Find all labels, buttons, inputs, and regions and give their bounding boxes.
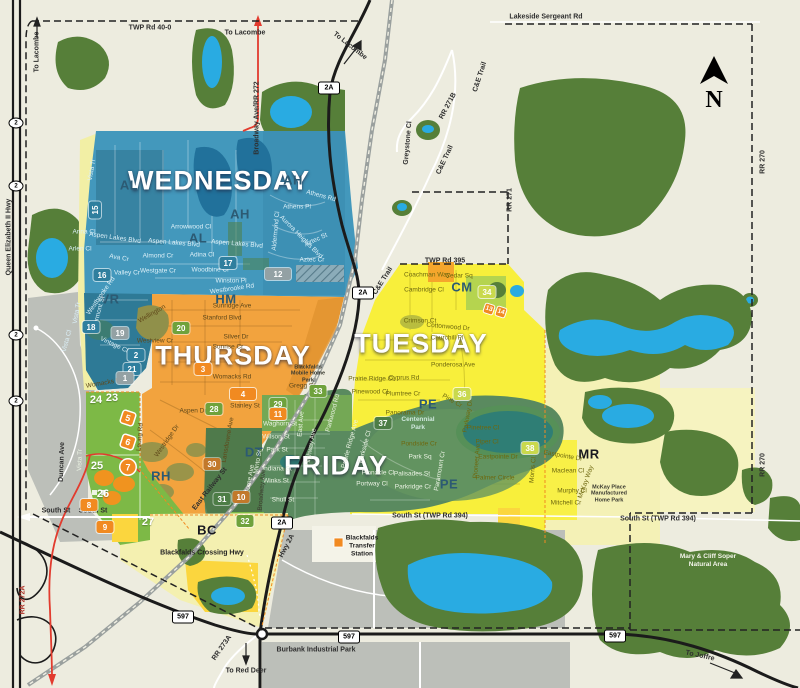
zone-badge: 31 <box>214 493 231 505</box>
highway-shield: 2 <box>9 396 24 407</box>
road-label: RR 270 <box>760 453 767 477</box>
street-label: Almond Cr <box>143 253 174 260</box>
street-label: Adina Cl <box>190 252 215 259</box>
street-label: Coachman Way <box>404 272 450 279</box>
road-label: To Joffre <box>685 650 715 663</box>
road-label: TWP Rd 395 <box>425 258 465 265</box>
street-label: Aztec Cr <box>300 257 325 264</box>
zone-badge: 23 <box>106 392 118 404</box>
street-label: Aspen Lakes Blvd <box>211 238 263 250</box>
road-label: To Red Deer <box>226 668 267 675</box>
day-zone-label: FRIDAY <box>284 451 388 482</box>
street-label: Cambridge Cl <box>404 287 444 294</box>
street-label: Shull St <box>272 497 294 504</box>
street-label: Vista Cl <box>61 329 74 352</box>
street-label: Park St <box>266 447 287 454</box>
street-label: Maclean Cl <box>552 468 585 475</box>
street-label: Sunridge Ave <box>213 303 252 310</box>
area-code-label: AL <box>120 178 138 193</box>
street-label: Vista Tr <box>87 159 98 182</box>
area-code-label: RH <box>151 469 171 484</box>
street-label: Winks St <box>263 478 289 485</box>
poi-label: Blackfalds Mobile Home Park <box>286 365 330 384</box>
zone-badge: 6 <box>120 434 135 449</box>
street-label: Aldermond Cl <box>271 211 281 251</box>
zone-badge: 27 <box>142 516 154 528</box>
road-label: C&E Trail <box>435 144 454 175</box>
road-label: Broadway Ave/RR 272 <box>254 81 261 154</box>
street-label: Arrowwood Cl <box>171 224 211 231</box>
street-label: Plumtree Cr <box>386 391 421 398</box>
highway-shield: 597 <box>338 631 360 644</box>
street-label: Vista Tr <box>76 449 84 471</box>
street-label: Broadway Ave <box>257 469 268 511</box>
road-label: Duncan Ave <box>58 442 66 482</box>
street-label: Churchill Pl <box>431 335 464 342</box>
street-label: Palmer Circle <box>475 475 514 482</box>
street-label: Stanford Blvd <box>202 315 241 322</box>
street-label: Valley Cr <box>114 270 140 277</box>
zone-badge: 32 <box>237 515 254 527</box>
area-code-label: BC <box>197 523 217 538</box>
poi-label: Blackfalds Transfer Station <box>342 534 382 557</box>
zone-badge: 26 <box>97 488 109 500</box>
zone-badge: 33 <box>310 385 327 397</box>
road-label: Burbank Industrial Park <box>277 647 356 654</box>
street-label: Park Sq <box>408 454 431 461</box>
highway-shield: 2 <box>9 118 24 129</box>
street-label: Stanley St <box>230 403 260 410</box>
zone-badge: 3 <box>195 363 212 375</box>
zone-badge: 10 <box>233 491 250 503</box>
zone-badge: 34 <box>479 286 496 298</box>
zone-badge: 2 <box>128 349 145 361</box>
street-label: Eastpointe Dr <box>543 449 583 463</box>
zone-badge: 19 <box>112 327 129 339</box>
road-label: Queen Elizabeth II Hwy <box>6 199 13 276</box>
street-label: Arlen Cl <box>68 246 91 253</box>
zone-badge: 1 <box>117 372 134 384</box>
zone-badge: 18 <box>83 321 100 333</box>
zone-badge: 25 <box>91 460 103 472</box>
street-label: Parkwood Rd <box>325 393 342 433</box>
street-label: Pinewood Cl <box>352 389 389 396</box>
poi-label: Mary & Cliff Soper Natural Area <box>675 553 741 569</box>
road-label: Greystone Cl <box>403 121 414 165</box>
street-label: Cedar Sq <box>445 273 472 280</box>
street-label: Westridge Dr <box>153 424 180 459</box>
road-label: South St (TWP Rd 394) <box>620 516 696 523</box>
street-label: Vista Tr <box>72 302 83 325</box>
road-label: TWP Rd 40-0 <box>129 25 172 32</box>
highway-shield: 2 <box>9 330 24 341</box>
zone-badge: 7 <box>121 460 136 475</box>
road-label: RR 271B <box>438 92 458 121</box>
street-label: Prairie Ridge Cl <box>348 376 394 383</box>
zone-badge: 13 <box>483 303 494 314</box>
highway-shield: 2A <box>271 517 293 530</box>
zone-badge: 9 <box>97 521 114 533</box>
street-label: Aztec St <box>304 232 329 249</box>
zone-badge: 12 <box>265 268 291 280</box>
street-label: Aspen Dr <box>179 408 206 415</box>
zone-badge: 17 <box>220 257 237 269</box>
zone-badge: 5 <box>120 410 135 425</box>
road-label: C&E Trail <box>372 266 394 296</box>
street-label: East Ave <box>296 411 305 437</box>
area-code-label: AH <box>230 207 250 222</box>
highway-shield: 2A <box>318 82 340 95</box>
road-label: South St (TWP Rd 394) <box>392 513 468 520</box>
area-code-label: AH <box>283 173 303 188</box>
street-label: Palisades St <box>394 471 430 478</box>
road-label: To Lacombe <box>332 31 368 62</box>
zone-badge: 20 <box>173 322 190 334</box>
road-label: Hwy 2A <box>278 533 296 559</box>
road-label: To Lacombe <box>34 32 41 73</box>
street-label: Womacks Rd <box>213 374 252 381</box>
road-label: RR 270 <box>760 150 767 174</box>
street-label: Lansdowne Ave <box>221 417 236 463</box>
zone-badge: 28 <box>206 403 223 415</box>
street-label: Ava Cr <box>109 253 130 263</box>
street-label: Parkridge Cr <box>395 484 431 491</box>
street-label: Westview Cr <box>137 338 173 345</box>
road-label: RR 271 <box>507 188 514 212</box>
highway-shield: 2A <box>352 287 374 300</box>
road-label: South St <box>42 508 71 515</box>
street-label: Waghorn St <box>263 421 297 428</box>
zone-badge: 37 <box>375 417 392 429</box>
day-zone-label: TUESDAY <box>354 329 488 360</box>
street-label: Pinetree Cl <box>467 425 499 432</box>
road-label: RR 272A <box>20 586 27 615</box>
zone-badge: 15 <box>89 202 101 219</box>
street-label: Athens Pl <box>283 204 311 211</box>
street-label: Wellington <box>137 303 167 324</box>
map-labels-layer: WEDNESDAYTHURSDAYTUESDAYFRIDAYAHALAHALVR… <box>0 0 800 688</box>
street-label: Portway Cl <box>356 481 387 488</box>
zone-badge: 11 <box>270 408 287 420</box>
street-label: Athens Rd <box>305 189 336 204</box>
zone-badge: 14 <box>495 306 506 317</box>
street-label: Aspen Lakes Blvd <box>89 231 142 245</box>
street-label: Pioneer Ave <box>472 443 482 478</box>
poi-label: McKay Place Manufactured Home Park <box>587 485 631 504</box>
street-label: Ponderosa Ave <box>431 362 475 369</box>
street-label: Pondside Cr <box>401 441 437 448</box>
street-label: Wilson St <box>262 434 289 441</box>
zone-badge: 4 <box>230 388 256 400</box>
poi-label: Centennial Park <box>394 416 442 432</box>
zone-badge: 8 <box>81 499 98 511</box>
street-label: Eastpointe Dr <box>478 454 517 461</box>
street-label: Pinnacle Cl <box>362 470 395 477</box>
road-label: RR 273A <box>211 634 233 662</box>
road-label: To Lacombe <box>225 30 266 37</box>
zone-badge: 38 <box>522 442 539 454</box>
street-label: Lorne Ave <box>244 464 256 494</box>
highway-shield: 2 <box>9 181 24 192</box>
highway-shield: 597 <box>172 611 194 624</box>
collection-zone-map: N WEDNESDAYTHURSDAYTUESDAYFRIDAYAHALAHAL… <box>0 0 800 688</box>
street-label: Leung Rd <box>135 423 144 452</box>
street-label: Westgate Cr <box>140 268 176 275</box>
zone-badge: 36 <box>454 388 471 400</box>
street-label: Morris Cl <box>528 457 537 484</box>
area-code-label: PE <box>440 477 458 492</box>
zone-badge: 16 <box>94 269 111 281</box>
street-label: Mitchell Cr <box>551 500 582 507</box>
road-label: Lakeside Sergeant Rd <box>509 14 582 21</box>
zone-badge: 24 <box>90 394 102 406</box>
road-label: C&E Trail <box>472 61 488 93</box>
highway-shield: 597 <box>604 630 626 643</box>
zone-badge: 30 <box>204 458 221 470</box>
poi-label: Blackfalds Crossing Hwy <box>160 550 244 557</box>
street-label: Sunrise Cr <box>213 344 244 351</box>
area-code-label: CM <box>451 280 472 295</box>
street-label: Silver Dr <box>224 334 249 341</box>
